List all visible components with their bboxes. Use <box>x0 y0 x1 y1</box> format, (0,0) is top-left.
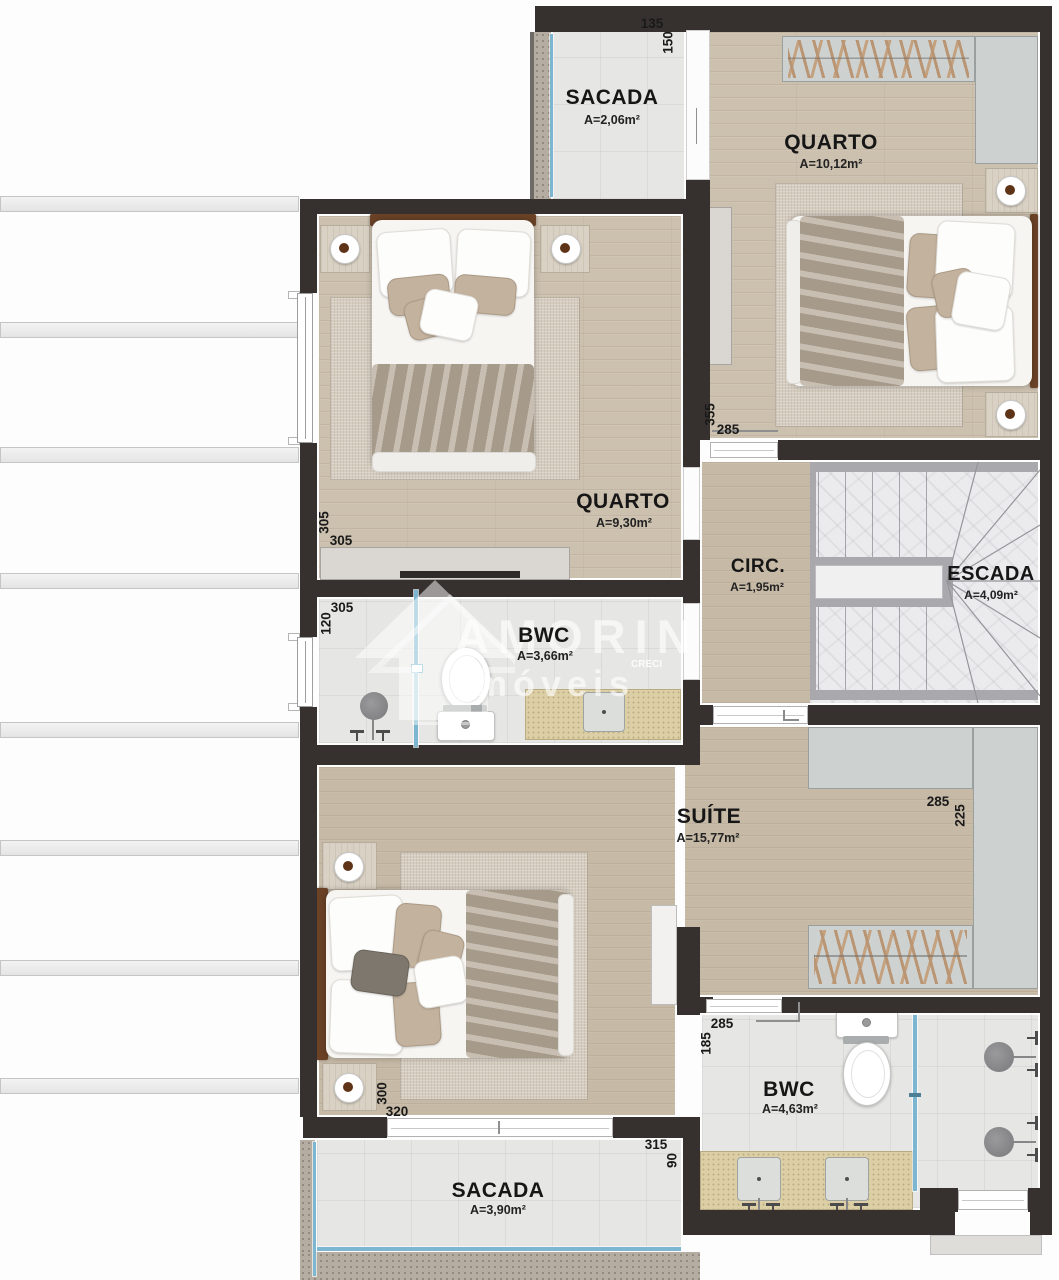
slab-bar <box>0 573 299 589</box>
room-area-suite: A=15,77m² <box>677 831 740 845</box>
dim-label: 305 <box>321 533 361 548</box>
slab-bar <box>0 196 299 212</box>
wall-segment <box>920 1188 958 1212</box>
glass-railing-bottom <box>317 1247 681 1251</box>
wall-segment <box>782 997 1040 1013</box>
door-rail <box>696 108 697 144</box>
glass-door-handle <box>909 1093 921 1097</box>
wall-segment <box>613 1117 700 1138</box>
glass-railing-bottom-left <box>313 1142 316 1276</box>
room-area-circ: A=1,95m² <box>730 580 784 594</box>
shower-glass <box>913 1015 917 1191</box>
wall-segment <box>300 199 692 214</box>
slab-bar <box>0 447 299 463</box>
vanity-counter-double <box>700 1151 913 1210</box>
room-area-sacada-bottom: A=3,90m² <box>470 1203 526 1217</box>
room-label-quarto-right: QUARTO <box>784 131 878 155</box>
door-swing <box>783 710 799 721</box>
shower-valve <box>1024 1031 1038 1045</box>
shower-valve <box>350 730 364 741</box>
room-label-bwc-top: BWC <box>518 624 570 648</box>
wall-segment <box>1030 1210 1052 1235</box>
bedside-lamp <box>996 400 1026 430</box>
shower-valve <box>1024 1063 1038 1077</box>
bedside-lamp <box>330 234 360 264</box>
wall-segment <box>690 705 713 725</box>
dim-label: 150 <box>661 26 676 60</box>
bedside-lamp <box>996 176 1026 206</box>
wall-segment <box>778 440 1040 460</box>
closet-suite-side <box>973 727 1038 989</box>
wall-segment <box>686 180 710 216</box>
slab-bar <box>0 322 299 338</box>
floorplan: AMORIN imóveis CRECI SACADA A=2,06m² QUA… <box>0 0 1059 1280</box>
blanket <box>372 364 534 462</box>
dim-label: 185 <box>699 1027 714 1061</box>
railing-stone-top-sacada <box>534 32 551 199</box>
sink <box>583 692 625 732</box>
door-bwc-top <box>683 603 700 680</box>
shower-arm <box>372 718 374 740</box>
exterior-step <box>930 1235 1042 1255</box>
room-label-circ: CIRC. <box>731 556 785 578</box>
hanger-rods <box>788 40 969 78</box>
wall-segment <box>1028 1188 1052 1212</box>
window-quarto-left <box>297 293 313 443</box>
wall-segment <box>808 705 1040 725</box>
blanket <box>800 216 904 386</box>
pillow <box>412 954 470 1010</box>
room-area-quarto-right: A=10,12m² <box>800 157 863 171</box>
dim-label: 320 <box>377 1104 417 1119</box>
sink <box>825 1157 869 1201</box>
sliding-door-sacada-bottom <box>387 1118 613 1137</box>
shower-valve <box>376 730 390 741</box>
shower-head <box>984 1042 1014 1072</box>
toilet <box>836 1010 896 1106</box>
door-swing <box>756 1020 800 1022</box>
wall-segment <box>303 1117 387 1138</box>
pillow <box>349 948 410 997</box>
pillow <box>950 270 1013 333</box>
door-quarto-left <box>683 467 700 540</box>
slab-bar <box>0 960 299 976</box>
room-area-bwc-bottom: A=4,63m² <box>762 1102 818 1116</box>
bed-quarto-right <box>786 214 1038 388</box>
door-quarto-right <box>710 442 778 458</box>
room-label-suite: SUÍTE <box>677 805 741 829</box>
blanket <box>466 890 568 1058</box>
wardrobe-column-quarto-right <box>975 36 1038 164</box>
shaft <box>651 905 677 1005</box>
wall-segment <box>683 440 700 467</box>
shower-exit-door <box>958 1190 1028 1210</box>
room-label-escada: ESCADA <box>947 563 1034 586</box>
room-label-quarto-left: QUARTO <box>576 490 670 514</box>
door-bwc-bottom <box>706 999 782 1013</box>
shower-head <box>984 1127 1014 1157</box>
slab-bar <box>0 722 299 738</box>
room-label-sacada-top: SACADA <box>566 86 659 110</box>
shower-head <box>360 692 388 720</box>
wall-segment <box>300 707 317 1117</box>
window-bwc-top <box>297 637 313 707</box>
bed-suite <box>316 888 574 1060</box>
wall-segment <box>683 540 700 603</box>
dim-label: 285 <box>708 422 748 437</box>
wall-segment <box>677 927 700 1015</box>
wall-segment <box>300 199 317 293</box>
closet-suite-top <box>808 727 973 789</box>
bedside-lamp <box>334 852 364 882</box>
bed-sheet <box>558 894 574 1056</box>
wall-segment <box>535 6 1052 32</box>
shower-arm <box>1012 1056 1036 1058</box>
hanger-rods <box>814 930 967 984</box>
bed-quarto-left <box>370 214 536 472</box>
wall-segment <box>1040 6 1052 1235</box>
bedside-lamp <box>551 234 581 264</box>
wall-segment <box>300 580 692 597</box>
shower-valve <box>1024 1148 1038 1162</box>
shower-valve <box>1024 1116 1038 1130</box>
slab-bar <box>0 1078 299 1094</box>
glass-door-handle <box>411 664 423 673</box>
room-area-sacada-top: A=2,06m² <box>584 113 640 127</box>
wall-segment <box>300 745 692 765</box>
dim-label: 225 <box>953 799 968 833</box>
bed-sheet <box>372 452 536 472</box>
toilet <box>437 645 493 740</box>
railing-stone-bottom <box>300 1252 700 1280</box>
shower-arm <box>1012 1141 1036 1143</box>
dim-label: 120 <box>319 607 334 641</box>
room-area-quarto-left: A=9,30m² <box>596 516 652 530</box>
bedside-lamp <box>334 1073 364 1103</box>
dim-label: 90 <box>665 1144 680 1178</box>
sink <box>737 1157 781 1201</box>
room-label-sacada-bottom: SACADA <box>452 1179 545 1203</box>
slab-bar <box>0 840 299 856</box>
door-swing <box>798 1002 800 1022</box>
stair-landing <box>815 565 943 599</box>
room-label-bwc-bottom: BWC <box>763 1078 815 1102</box>
sliding-door-sacada-top <box>686 30 710 180</box>
glass-railing-top-sacada <box>550 34 553 197</box>
tv <box>400 571 520 578</box>
wall-segment <box>300 443 317 637</box>
wall-segment <box>683 1210 955 1235</box>
room-area-escada: A=4,09m² <box>964 588 1018 602</box>
door-rail <box>498 1121 500 1134</box>
room-area-bwc-top: A=3,66m² <box>517 649 573 663</box>
